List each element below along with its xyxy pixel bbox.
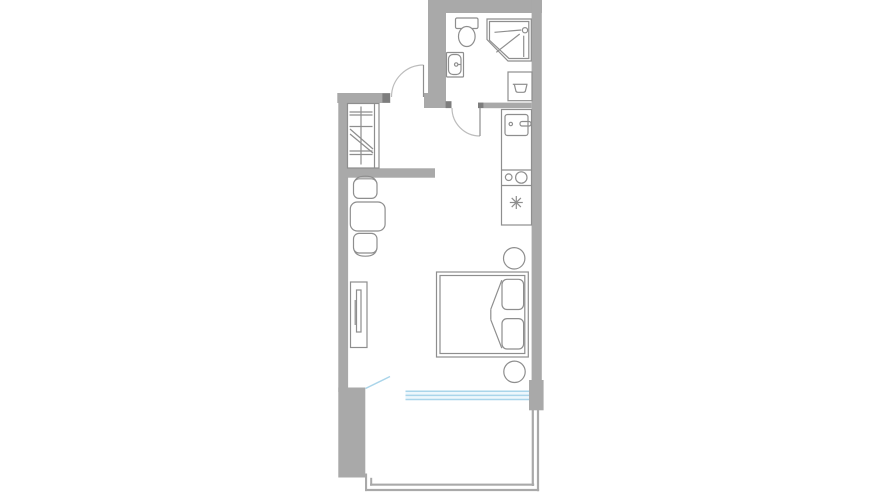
laundry-tub-box [508,72,532,101]
corner-shower [487,19,531,61]
wall-left-bottom-block [338,388,365,478]
floor-plan-canvas [0,0,880,495]
bathroom-door [452,108,480,136]
railing-left-inner [370,478,372,486]
pillow-bottom [502,319,524,349]
floor-plan-drawing [0,0,880,495]
window-band [406,391,530,401]
wall-right-pillar [529,380,544,410]
kitchen-counter [502,110,532,226]
wall-bathroom-left-foot [424,93,446,108]
toilet-bowl [459,27,476,47]
toilet [456,18,479,47]
wall-right [532,0,542,410]
balcony-railing [365,410,539,491]
chair-bottom-seat [354,233,378,253]
door-jamb-bathroom-left [446,101,452,108]
railing-bottom-inner [370,484,534,486]
railing-bottom-outer [365,489,539,491]
washbasin [447,53,464,78]
bed [437,248,529,383]
tv-stand-outline [351,282,368,348]
wall-bathroom-bottom [478,103,532,109]
wardrobe [348,104,380,169]
dining-table [350,202,385,231]
door-jamb-bathroom-right [478,103,483,108]
dining-set [350,176,385,256]
tv-stand [351,282,368,348]
railing-left-outer [365,474,367,492]
round-stool-bottom [504,361,525,382]
bathroom-door-swing-arc [452,108,480,136]
wall-left [338,93,348,392]
laundry-tub [508,72,532,101]
wall-bathroom-left [428,0,446,108]
shower-tray-outer [487,19,531,61]
railing-right-inner [532,410,534,486]
balcony-door-leaf [366,377,391,389]
door-jamb-entrance [382,93,390,102]
chair-top-seat [354,179,378,199]
round-stool-top [504,248,525,269]
entrance-door-swing-arc [392,65,424,97]
pillow-top [502,279,524,309]
hob-asterisk-icon [510,196,523,209]
entrance-door [392,65,424,97]
railing-right-outer [537,410,539,491]
wall-hall-bottom [345,168,435,177]
